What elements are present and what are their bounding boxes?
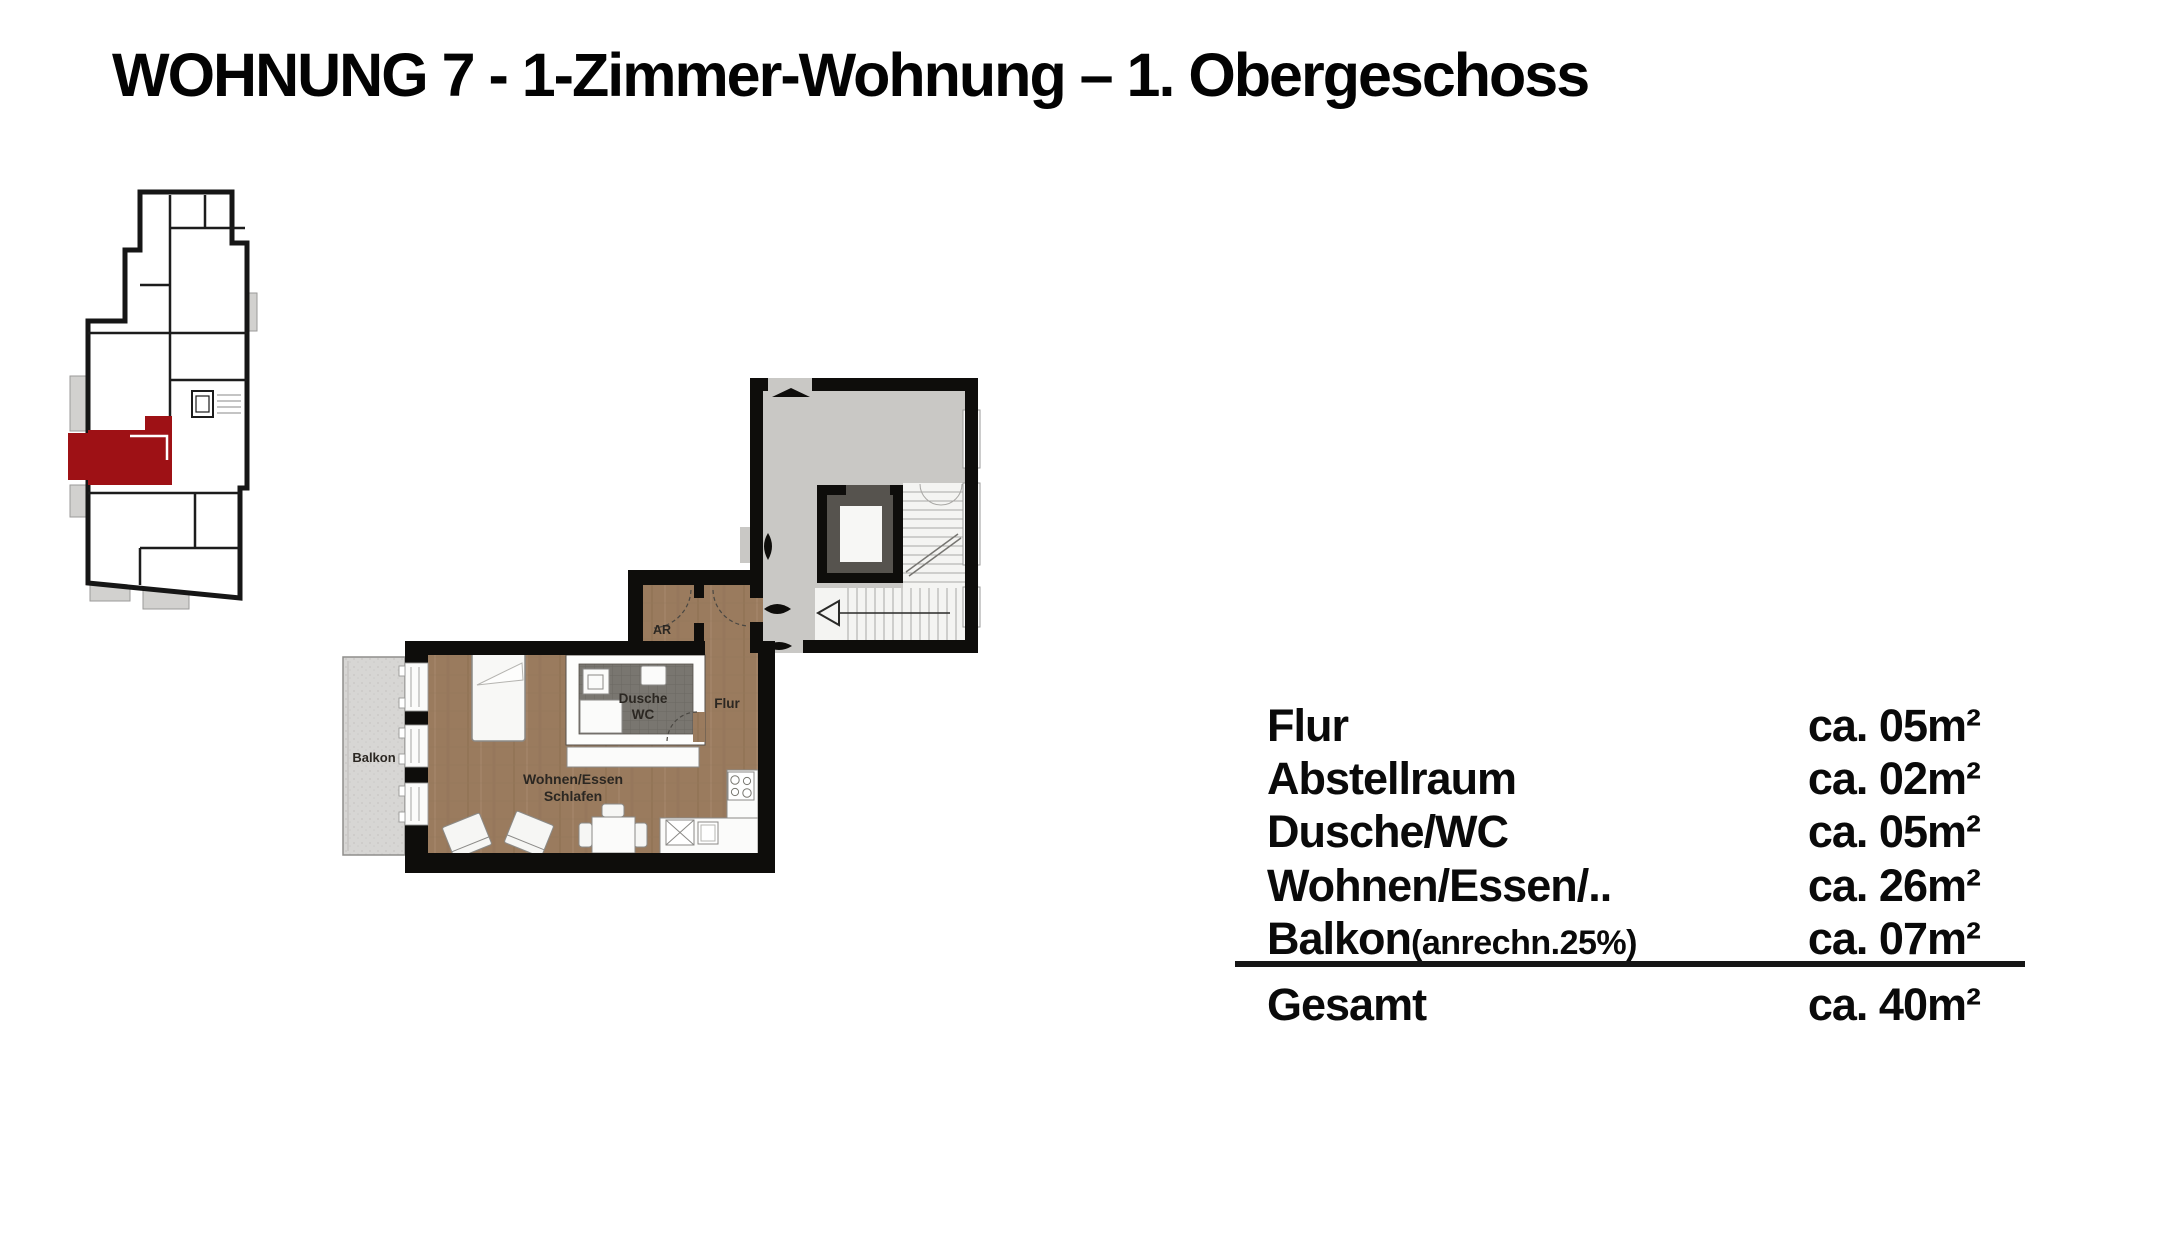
dining-table — [592, 817, 635, 853]
row-value: ca. 02m² — [1808, 755, 1980, 802]
row-value: ca. 05m² — [1808, 702, 1980, 749]
sideboard — [567, 747, 699, 767]
row-value: ca. 07m² — [1808, 915, 1980, 962]
row-note: (anrechn.25%) — [1411, 926, 1637, 962]
apartment-floor-plan: Balkon AR Flur Dusche WC Wohnen/Essen Sc… — [330, 265, 990, 885]
label-schlafen: Schlafen — [544, 788, 602, 804]
label-balkon: Balkon — [352, 750, 395, 765]
bed — [472, 652, 525, 741]
row-label: Abstellraum — [1267, 755, 1516, 802]
total-label: Gesamt — [1267, 981, 1426, 1028]
table-total-row: Gesamt ca. 40m² — [1267, 981, 1980, 1031]
area-table: Flur ca. 05m² Abstellraum ca. 02m² Dusch… — [0, 0, 2165, 1241]
row-label: Wohnen/Essen/.. — [1267, 862, 1611, 909]
label-dusche: Dusche — [619, 691, 668, 706]
stove — [728, 772, 754, 800]
kitchen-appliance — [698, 822, 718, 844]
row-label: Balkon — [1267, 915, 1411, 962]
label-wc: WC — [632, 707, 655, 722]
row-value: ca. 05m² — [1808, 808, 1980, 855]
row-label: Dusche/WC — [1267, 808, 1508, 855]
label-ar: AR — [653, 623, 671, 637]
table-row: Dusche/WC ca. 05m² — [1267, 808, 1980, 858]
shower — [580, 700, 622, 733]
label-flur: Flur — [714, 696, 740, 711]
stairwell — [740, 378, 980, 653]
stairs-upper-run — [903, 483, 965, 588]
row-value: ca. 26m² — [1808, 862, 1980, 909]
sink — [666, 820, 694, 845]
table-row: Abstellraum ca. 02m² — [1267, 755, 1980, 805]
toilet — [641, 666, 666, 685]
total-value: ca. 40m² — [1808, 981, 1980, 1028]
elevator — [817, 485, 903, 583]
label-wohnen-essen: Wohnen/Essen — [523, 771, 623, 787]
row-label: Flur — [1267, 702, 1348, 749]
table-divider — [1235, 961, 2025, 967]
table-row: Wohnen/Essen/.. ca. 26m² — [1267, 862, 1980, 912]
table-row: Flur ca. 05m² — [1267, 702, 1980, 752]
building-overview-plan — [45, 133, 260, 613]
table-row: Balkon(anrechn.25%) ca. 07m² — [1267, 915, 1980, 965]
stairs-lower-run — [815, 588, 965, 640]
floorplan-page: WOHNUNG 7 - 1-Zimmer-Wohnung – 1. Oberge… — [0, 0, 2165, 1241]
page-title: WOHNUNG 7 - 1-Zimmer-Wohnung – 1. Oberge… — [112, 40, 1588, 110]
